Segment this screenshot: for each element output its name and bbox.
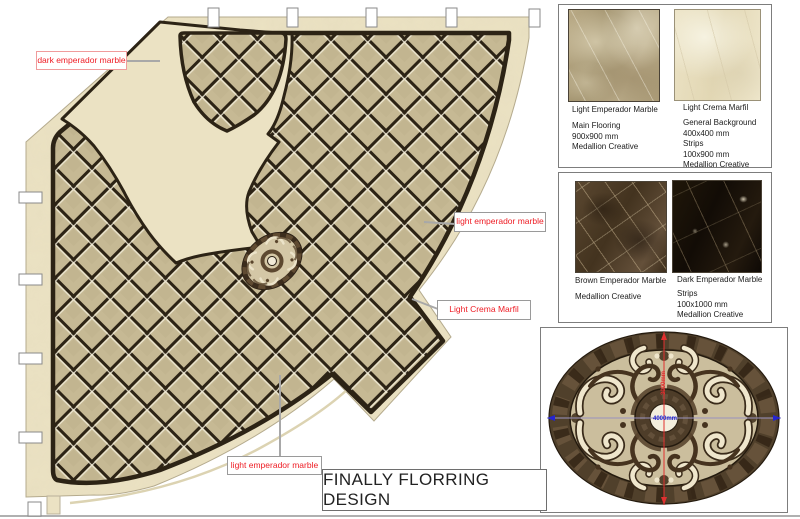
swatch-name-light-emperador: Light Emperador Marble bbox=[572, 105, 658, 114]
swatch-light-emperador-marble bbox=[568, 9, 660, 102]
note-line: 100x900 mm bbox=[683, 150, 756, 161]
swatch-notes-dark-emperador: Strips 100x1000 mm Medallion Creative bbox=[677, 289, 743, 321]
swatch-notes-light-emperador: Main Flooring 900x900 mm Medallion Creat… bbox=[572, 121, 638, 153]
horizontal-dimension-text: 4000mm bbox=[647, 416, 683, 422]
vertical-dimension-text: 3000mm bbox=[661, 371, 667, 395]
flooring-design-sheet: dark emperador marble light emperador ma… bbox=[0, 0, 800, 519]
swatch-dark-emperador-marble bbox=[672, 180, 762, 273]
note-line: Strips bbox=[677, 289, 743, 300]
title-block: FINALLY FLORRING DESIGN bbox=[322, 469, 547, 511]
floor-plan-drawing bbox=[0, 0, 560, 519]
sheet-title: FINALLY FLORRING DESIGN bbox=[323, 470, 546, 510]
swatch-notes-brown-emperador: Medallion Creative bbox=[575, 292, 641, 303]
swatch-name-dark-emperador: Dark Emperador Marble bbox=[677, 275, 762, 284]
note-line: Medallion Creative bbox=[683, 160, 756, 171]
note-line: 100x1000 mm bbox=[677, 300, 743, 311]
note-line: 900x900 mm bbox=[572, 132, 638, 143]
callout-dark-emperador-marble: dark emperador marble bbox=[36, 51, 127, 70]
swatch-name-light-crema: Light Crema Marfil bbox=[683, 103, 748, 112]
swatch-name-brown-emperador: Brown Emperador Marble bbox=[575, 276, 666, 285]
callout-light-emperador-marble-bottom: light emperador marble bbox=[227, 456, 322, 475]
note-line: Medallion Creative bbox=[572, 142, 638, 153]
swatch-light-crema-marfil bbox=[674, 9, 761, 101]
callout-light-emperador-marble-right: light emperador marble bbox=[454, 212, 546, 232]
note-line: Medallion Creative bbox=[677, 310, 743, 321]
note-line: Strips bbox=[683, 139, 756, 150]
note-line: Main Flooring bbox=[572, 121, 638, 132]
callout-light-crema-marfil: Light Crema Marfil bbox=[437, 300, 531, 320]
note-line: General Background bbox=[683, 118, 756, 129]
medallion-panel: 3000mm 4000mm bbox=[540, 327, 788, 513]
note-line: 400x400 mm bbox=[683, 129, 756, 140]
materials-panel-light: Light Emperador Marble Light Crema Marfi… bbox=[558, 4, 772, 168]
swatch-brown-emperador-marble bbox=[575, 181, 667, 273]
swatch-notes-light-crema: General Background 400x400 mm Strips 100… bbox=[683, 118, 756, 171]
materials-panel-dark: Brown Emperador Marble Dark Emperador Ma… bbox=[558, 172, 772, 323]
note-line: Medallion Creative bbox=[575, 292, 641, 303]
